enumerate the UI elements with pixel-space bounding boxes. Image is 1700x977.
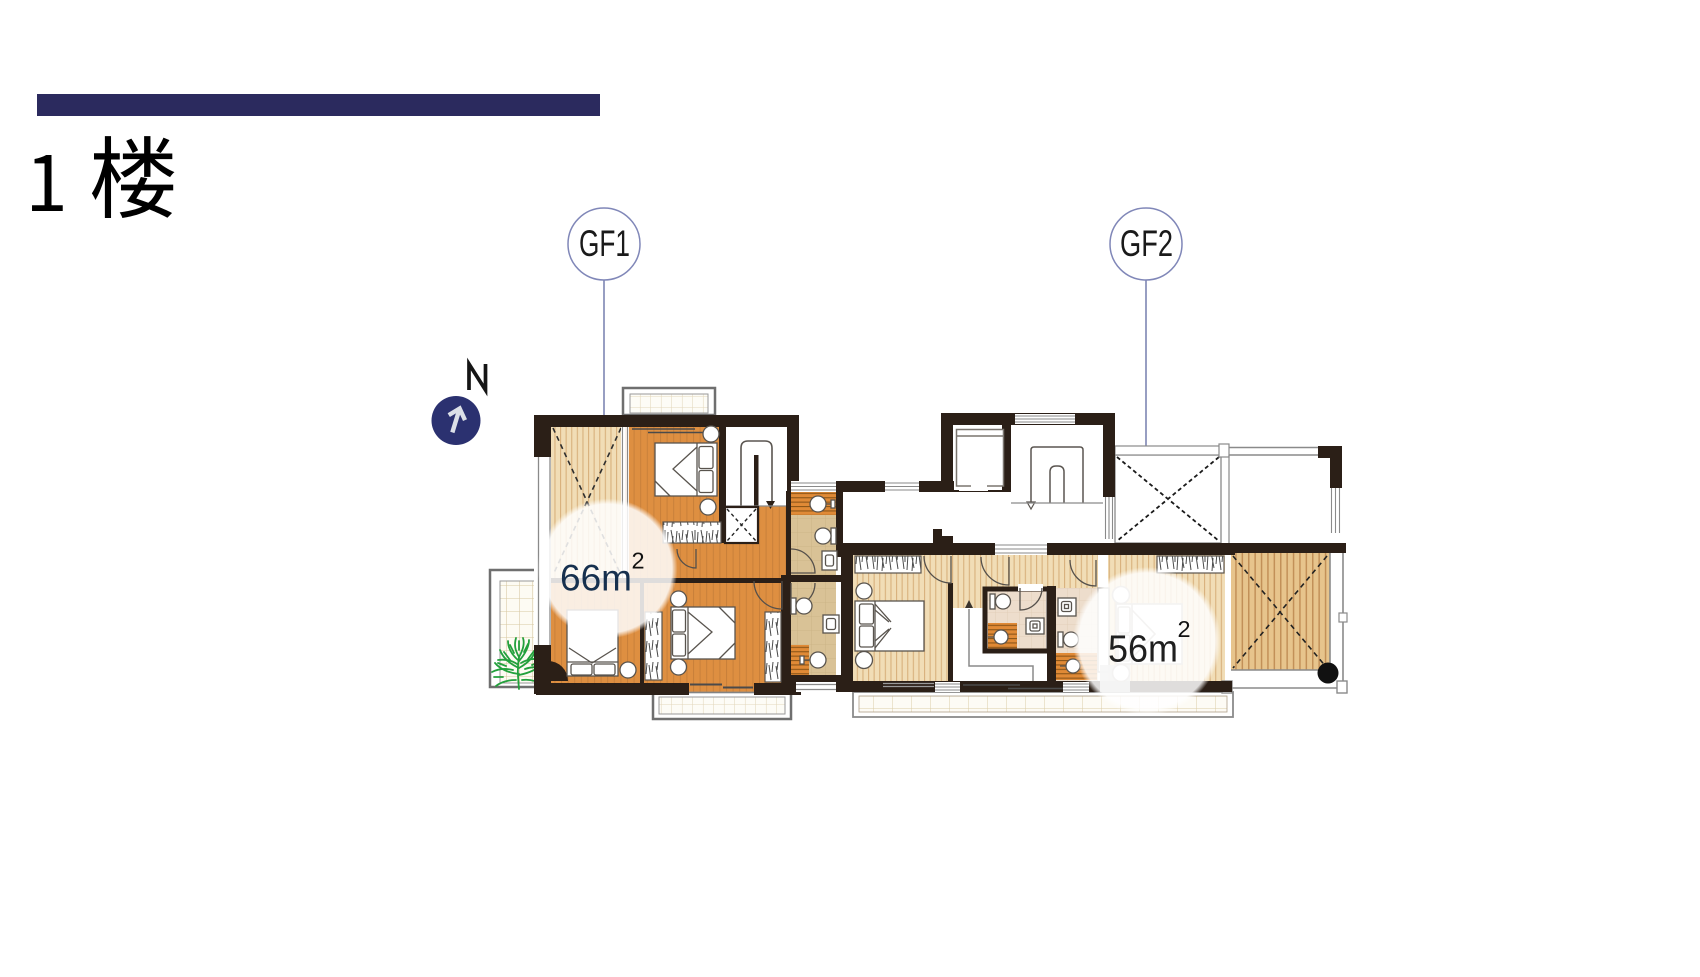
svg-text:2: 2: [632, 548, 645, 574]
svg-text:GF2: GF2: [1120, 223, 1173, 264]
svg-text:2: 2: [1178, 616, 1191, 642]
svg-text:GF1: GF1: [579, 223, 630, 264]
svg-text:56m: 56m: [1108, 628, 1178, 671]
svg-text:66m: 66m: [560, 557, 632, 599]
